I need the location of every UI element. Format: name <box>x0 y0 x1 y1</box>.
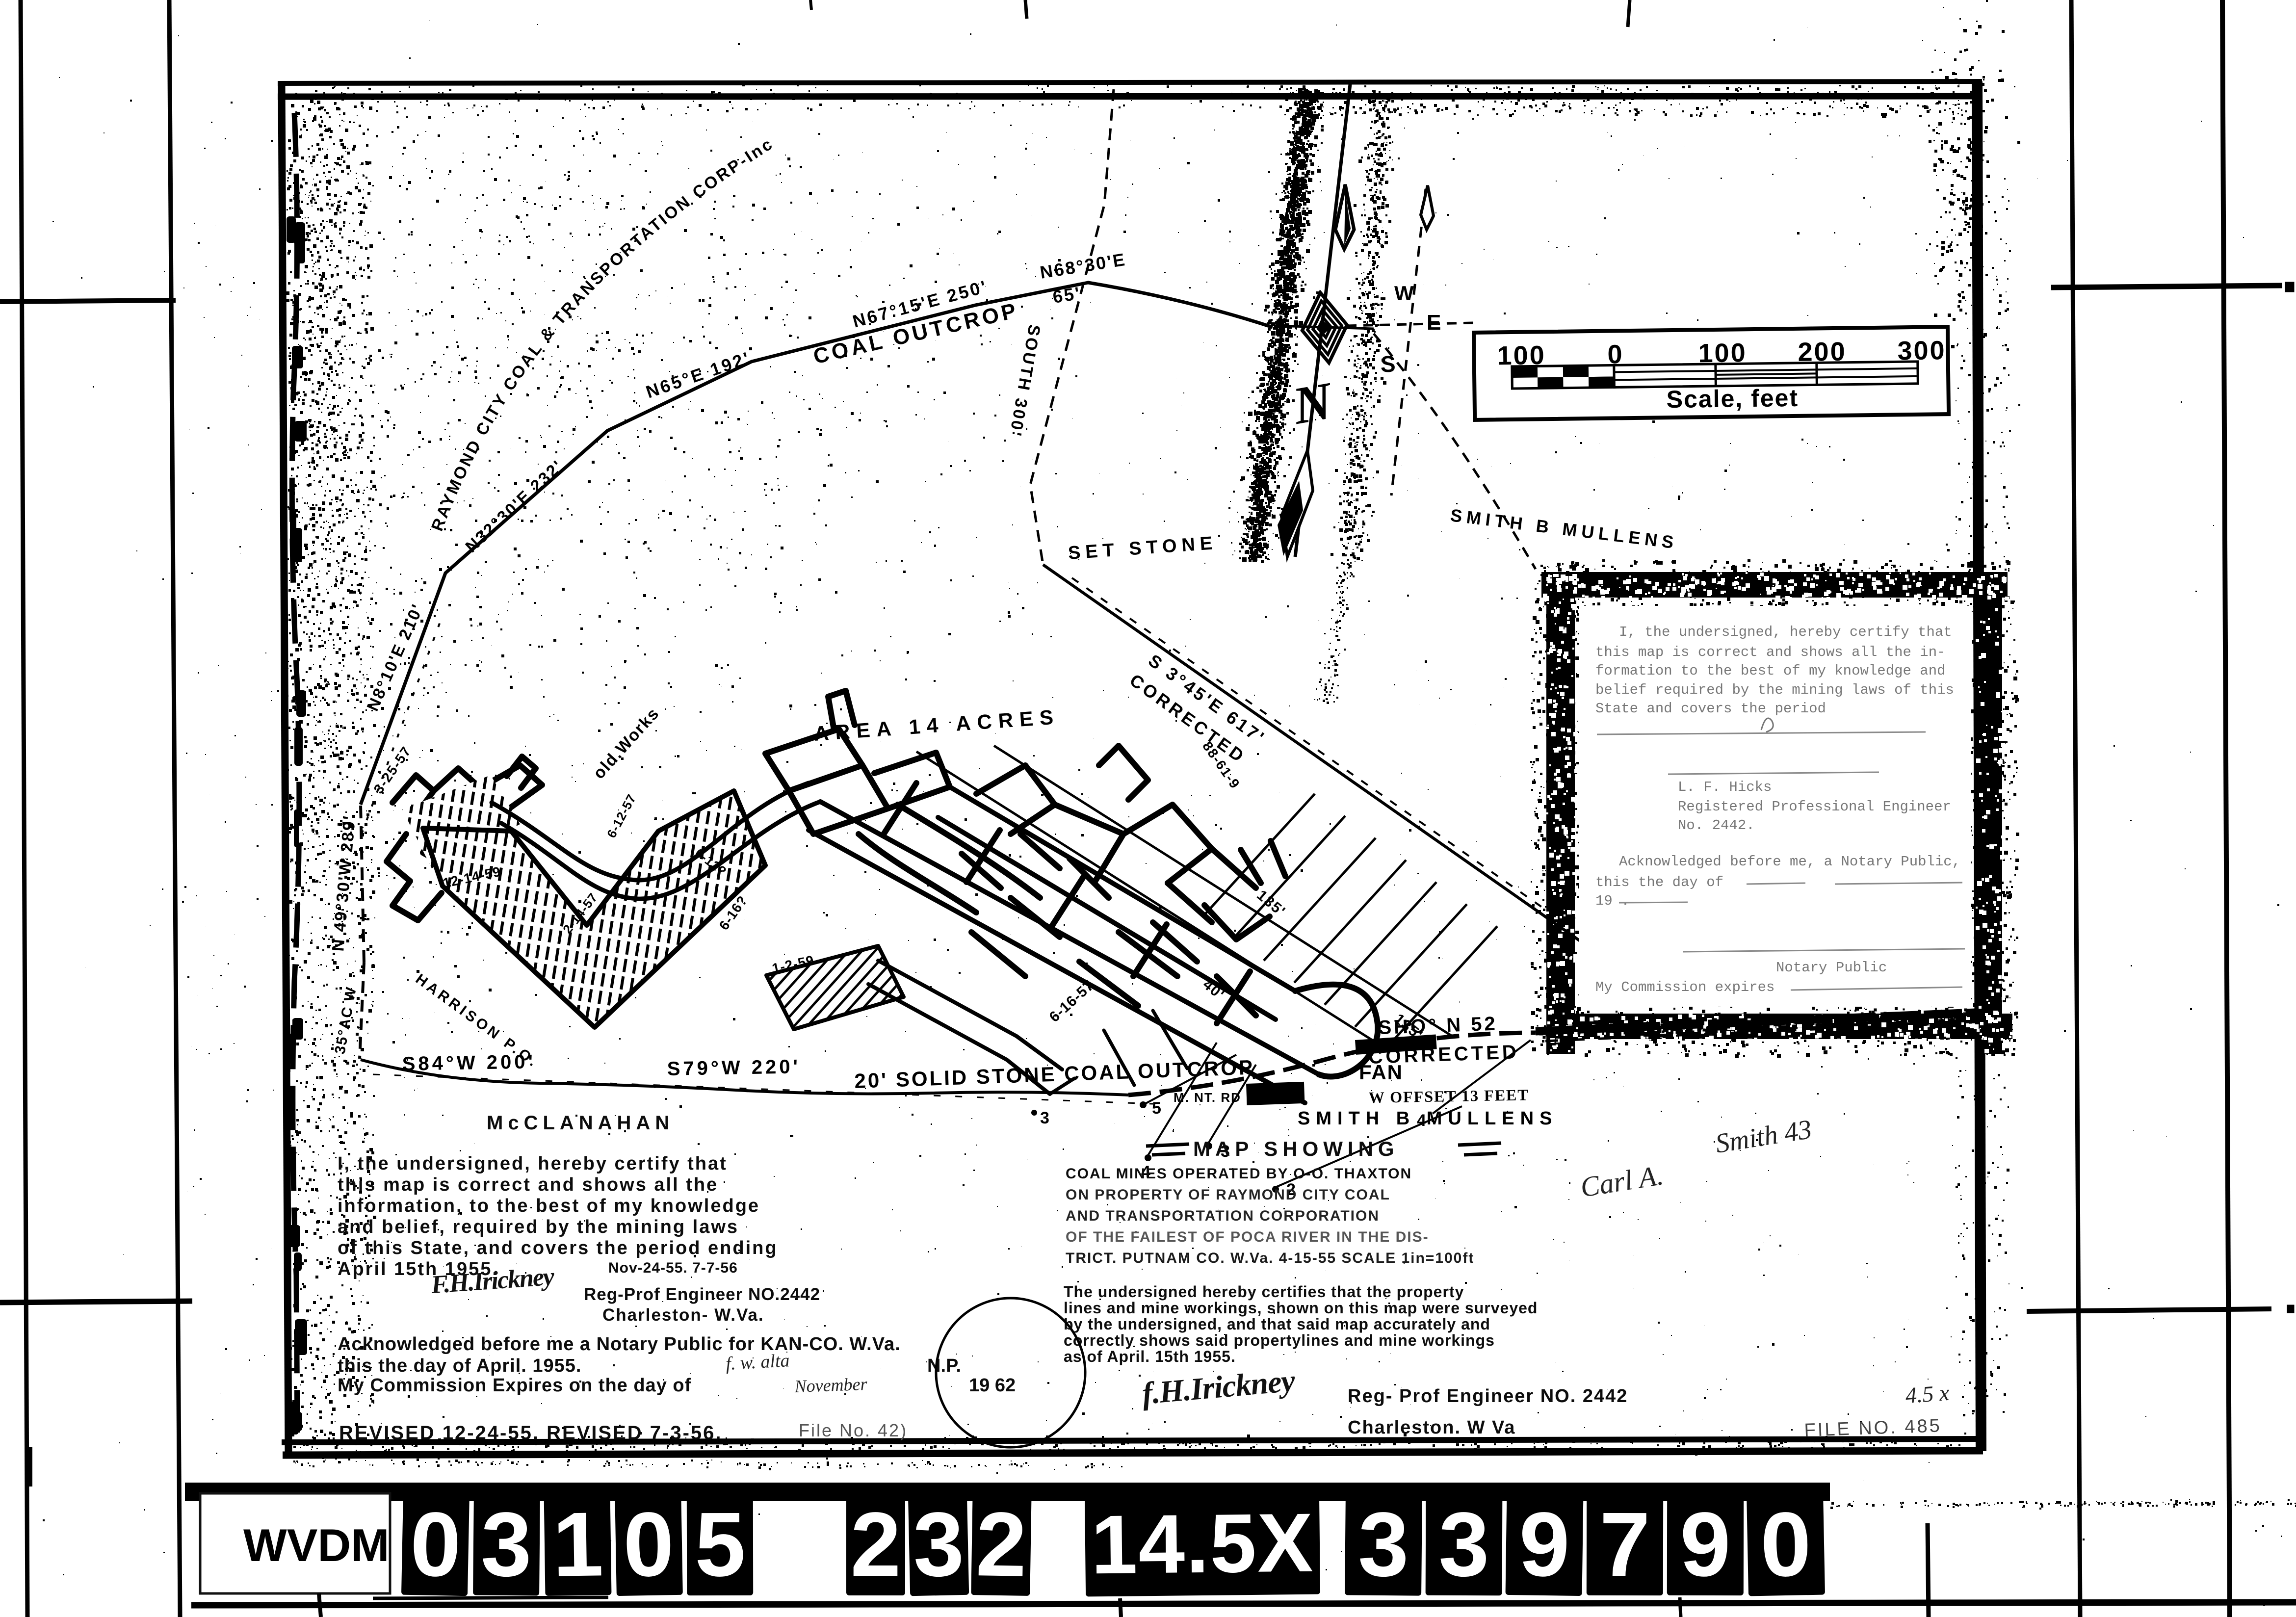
svg-text:OF THE FAILEST OF POCA RIVER I: OF THE FAILEST OF POCA RIVER IN THE DIS- <box>1066 1229 1429 1245</box>
svg-text:by the undersigned, and that s: by the undersigned, and that said map ac… <box>1064 1315 1490 1333</box>
svg-text:ON PROPERTY OF RAYMOND CITY CO: ON PROPERTY OF RAYMOND CITY COAL <box>1066 1187 1390 1203</box>
svg-text:19 62: 19 62 <box>969 1375 1016 1396</box>
svg-text:COAL MINES OPERATED BY O-O. TH: COAL MINES OPERATED BY O-O. THAXTON <box>1066 1166 1412 1182</box>
svg-text:Reg- Prof Engineer NO. 2442: Reg- Prof Engineer NO. 2442 <box>1348 1386 1628 1407</box>
svg-text:Scale, feet: Scale, feet <box>1666 384 1799 413</box>
svg-text:9: 9 <box>1680 1494 1731 1595</box>
svg-text:W OFFSET 13 FEET: W OFFSET 13 FEET <box>1368 1086 1529 1106</box>
svg-text:S84°W 200': S84°W 200' <box>402 1051 536 1075</box>
svg-text:formation to the best of my kn: formation to the best of my knowledge an… <box>1595 663 1946 679</box>
svg-text:Registered Professional Engine: Registered Professional Engineer <box>1678 799 1951 815</box>
svg-text:S: S <box>1381 351 1396 377</box>
svg-text:3: 3 <box>912 1493 965 1596</box>
svg-text:S79°W 220': S79°W 220' <box>667 1056 801 1080</box>
svg-text:FAN: FAN <box>1359 1061 1403 1084</box>
svg-text:lines and mine workings, shown: lines and mine workings, shown on this m… <box>1064 1299 1538 1317</box>
svg-text:correctly shows said propertyl: correctly shows said propertylines and m… <box>1064 1331 1495 1349</box>
svg-text:November: November <box>794 1374 868 1396</box>
svg-text:My Commission expires: My Commission expires <box>1595 979 1774 995</box>
svg-text:this the day of: this the day of <box>1595 874 1723 890</box>
svg-text:this the day of April. 1955.: this the day of April. 1955. <box>338 1356 582 1376</box>
svg-text:1: 1 <box>552 1493 604 1595</box>
svg-text:Charleston. W Va: Charleston. W Va <box>1348 1417 1515 1438</box>
svg-text:Charleston- W.Va.: Charleston- W.Va. <box>602 1305 764 1325</box>
svg-text:information, to the best of my: information, to the best of my knowledge <box>338 1196 760 1216</box>
svg-text:Notary Public: Notary Public <box>1776 960 1887 976</box>
svg-text:as of April. 15th 1955.: as of April. 15th 1955. <box>1064 1348 1236 1365</box>
svg-text:AND TRANSPORTATION CORPORATION: AND TRANSPORTATION CORPORATION <box>1066 1208 1380 1224</box>
svg-text:McCLANAHAN: McCLANAHAN <box>487 1112 674 1134</box>
svg-text:TRICT. PUTNAM CO. W.Va. 4-15: TRICT. PUTNAM CO. W.Va. 4-15-55 SCALE 1i… <box>1066 1250 1474 1266</box>
svg-text:REVISED 12-24-55. REVISED 7-3: REVISED 12-24-55. REVISED 7-3-56. <box>339 1422 723 1444</box>
svg-text:I, the undersigned, hereby cer: I, the undersigned, hereby certify that <box>338 1153 728 1174</box>
svg-text:E: E <box>1427 311 1441 335</box>
svg-text:The undersigned hereby certifi: The undersigned hereby certifies that th… <box>1064 1283 1464 1301</box>
svg-text:N.P.: N.P. <box>927 1356 961 1376</box>
svg-text:2: 2 <box>975 1493 1028 1596</box>
svg-text:Reg-Prof Engineer NO.2442: Reg-Prof Engineer NO.2442 <box>584 1285 820 1304</box>
svg-text:this map is correct and shows: this map is correct and shows all the <box>338 1174 718 1195</box>
svg-text:4.5 x: 4.5 x <box>1905 1380 1950 1408</box>
svg-text:2: 2 <box>850 1494 901 1595</box>
svg-text:Nov-24-55. 7-7-56: Nov-24-55. 7-7-56 <box>608 1260 738 1276</box>
svg-text:belief required by the mining: belief required by the mining laws of th… <box>1595 682 1954 698</box>
svg-text:0: 0 <box>1759 1493 1812 1596</box>
svg-text:9: 9 <box>1518 1493 1570 1595</box>
svg-text:of this State, and covers the: of this State, and covers the period end… <box>338 1238 778 1258</box>
svg-text:3: 3 <box>1438 1494 1489 1595</box>
svg-text:File No. 42): File No. 42) <box>799 1420 908 1440</box>
svg-text:Acknowledged before me, a Nota: Acknowledged before me, a Notary Public, <box>1619 854 1960 870</box>
svg-text:SMITH B MULLENS: SMITH B MULLENS <box>1298 1108 1558 1129</box>
svg-text:State and covers the period: State and covers the period <box>1595 701 1826 717</box>
svg-text:this map is correct and shows: this map is correct and shows all the in… <box>1595 644 1946 660</box>
svg-text:14.5X: 14.5X <box>1091 1496 1314 1592</box>
svg-text:3: 3 <box>1357 1494 1409 1596</box>
svg-text:3: 3 <box>480 1494 532 1596</box>
svg-text:My Commission Expires on the: My Commission Expires on the day of <box>338 1375 691 1396</box>
svg-text:WVDM: WVDM <box>243 1519 390 1571</box>
svg-text:MAP SHOWING: MAP SHOWING <box>1193 1137 1399 1160</box>
svg-text:L. F. Hicks: L. F. Hicks <box>1678 779 1772 795</box>
svg-text:5: 5 <box>695 1494 746 1595</box>
svg-text:19 .: 19 . <box>1595 893 1630 909</box>
svg-text:W: W <box>1394 282 1414 305</box>
svg-text:7: 7 <box>1599 1494 1650 1595</box>
svg-text:5: 5 <box>1152 1099 1161 1118</box>
svg-text:f. w. alta: f. w. alta <box>725 1350 790 1374</box>
svg-text:I, the undersigned, hereby cer: I, the undersigned, hereby certify that <box>1619 624 1952 640</box>
svg-text:and belief, required by the mi: and belief, required by the mining laws <box>338 1217 739 1237</box>
svg-text:SHO° N 52: SHO° N 52 <box>1378 1013 1498 1039</box>
svg-text:M. NT. RD: M. NT. RD <box>1174 1090 1241 1105</box>
svg-text:3: 3 <box>1040 1109 1049 1127</box>
svg-text:0: 0 <box>623 1493 675 1596</box>
svg-text:0: 0 <box>409 1493 462 1596</box>
svg-text:Acknowledged before me a Notar: Acknowledged before me a Notary Public f… <box>338 1334 901 1355</box>
svg-text:No. 2442.: No. 2442. <box>1678 817 1755 834</box>
